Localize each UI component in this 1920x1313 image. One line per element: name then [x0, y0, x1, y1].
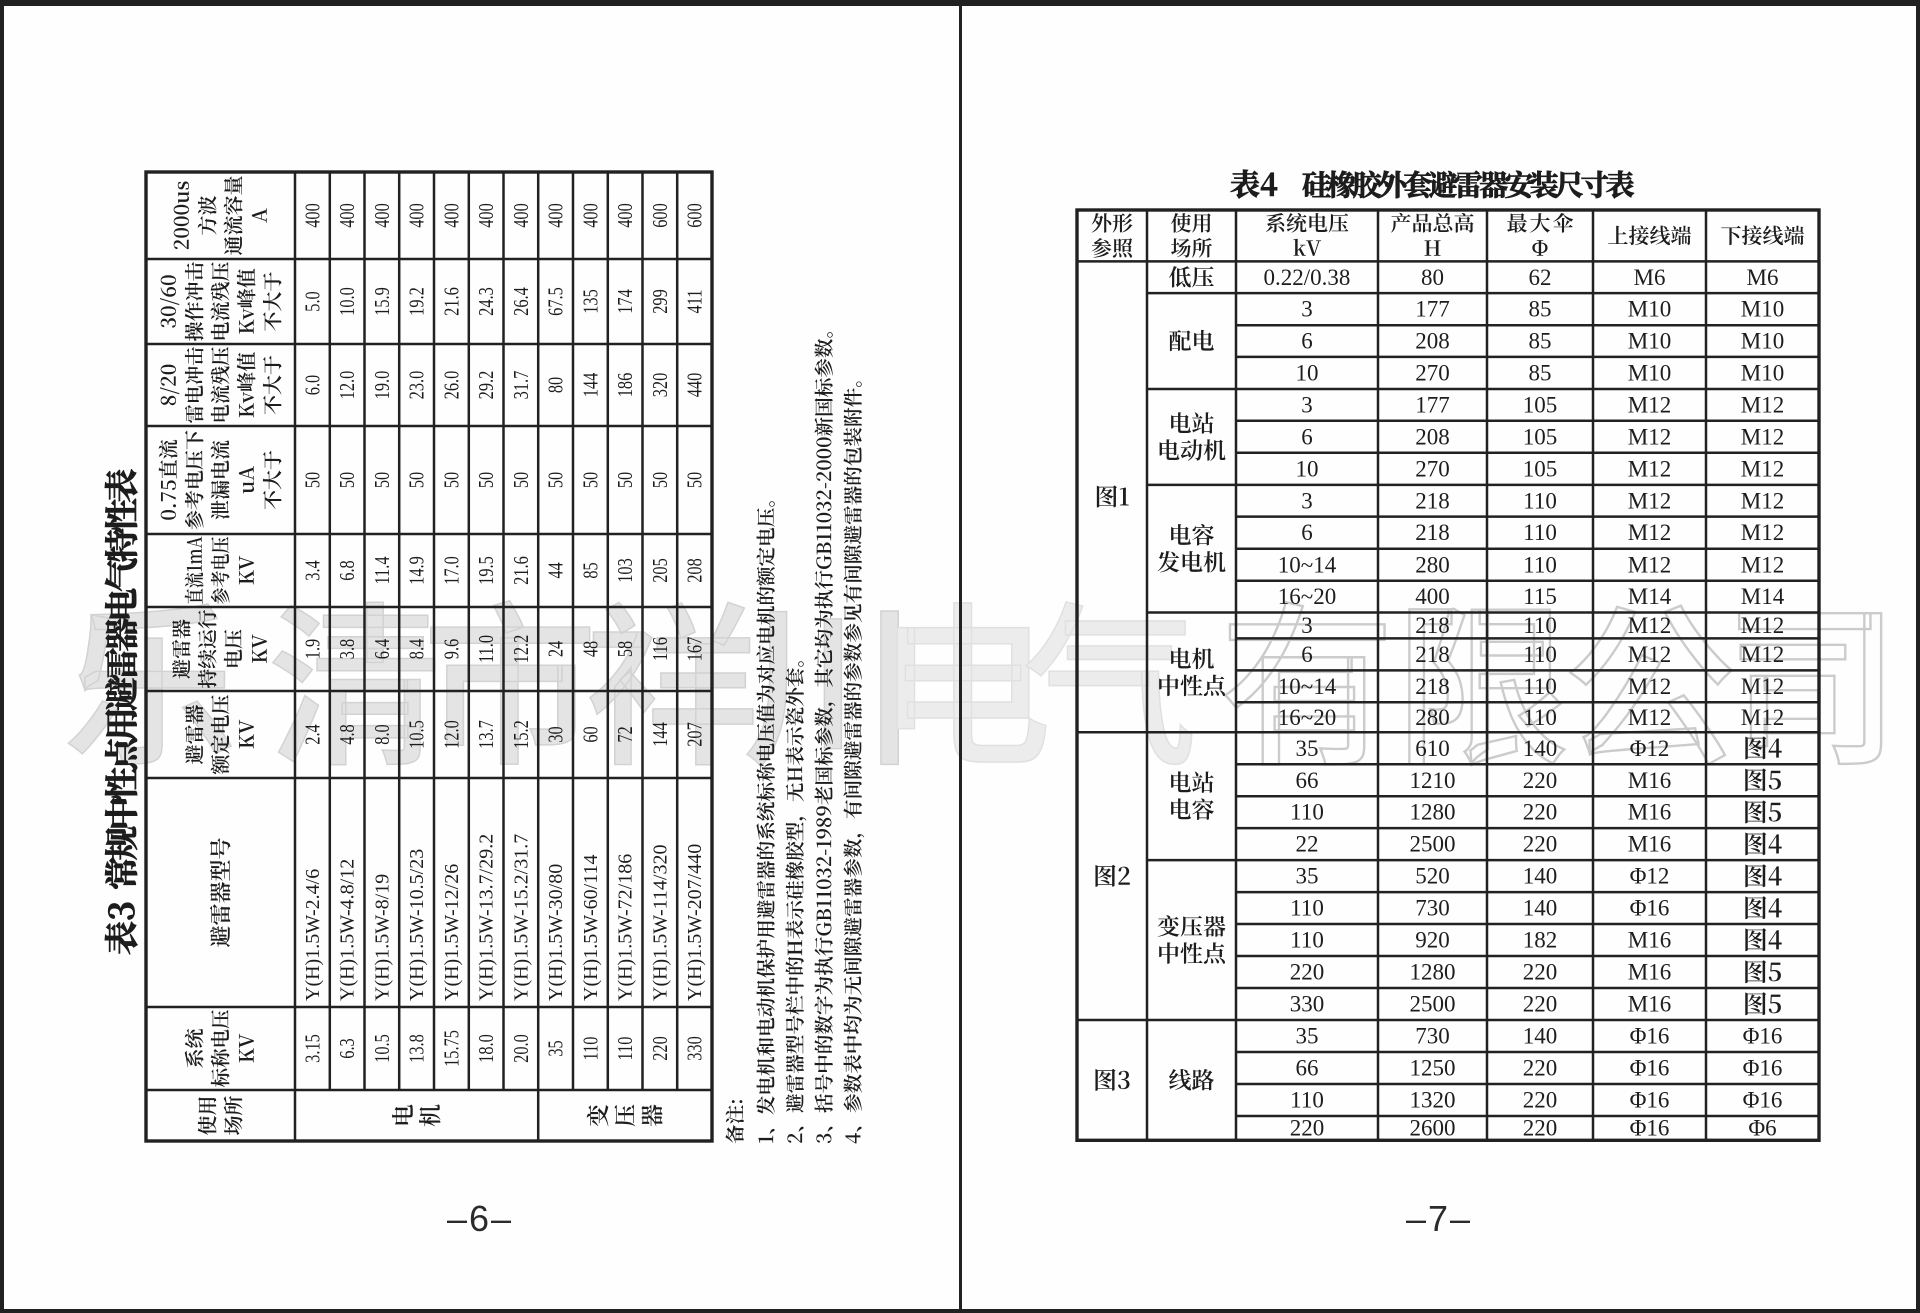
svg-text:M12: M12 [1628, 674, 1671, 699]
svg-text:M16: M16 [1628, 800, 1671, 825]
svg-text:110: 110 [1290, 800, 1324, 825]
svg-text:26.0: 26.0 [440, 371, 463, 400]
svg-text:19.5: 19.5 [475, 556, 498, 585]
svg-text:50: 50 [336, 472, 359, 488]
svg-text:M12: M12 [1628, 705, 1671, 730]
svg-text:110: 110 [579, 1037, 602, 1061]
svg-text:2500: 2500 [1410, 992, 1456, 1017]
svg-text:105: 105 [1523, 424, 1558, 449]
svg-text:–7–: –7– [1406, 1198, 1472, 1239]
svg-text:520: 520 [1415, 864, 1450, 889]
svg-text:10~14: 10~14 [1278, 552, 1337, 577]
svg-text:218: 218 [1415, 613, 1450, 638]
svg-text:Y(H)1.5W-2.4/6: Y(H)1.5W-2.4/6 [302, 869, 324, 1001]
svg-text:Φ12: Φ12 [1630, 864, 1670, 889]
svg-text:15.75: 15.75 [440, 1030, 463, 1067]
svg-text:10.0: 10.0 [336, 287, 359, 316]
svg-text:M12: M12 [1628, 456, 1671, 481]
svg-text:30: 30 [545, 726, 568, 742]
svg-text:8.0: 8.0 [371, 724, 394, 744]
svg-text:144: 144 [649, 722, 672, 747]
svg-text:110: 110 [1523, 642, 1557, 667]
svg-text:110: 110 [1523, 613, 1557, 638]
svg-text:182: 182 [1523, 928, 1558, 953]
svg-text:Y(H)1.5W-12/26: Y(H)1.5W-12/26 [441, 864, 463, 1001]
svg-text:103: 103 [614, 558, 637, 583]
svg-text:400: 400 [406, 203, 429, 228]
svg-text:M12: M12 [1741, 674, 1784, 699]
svg-text:Φ16: Φ16 [1630, 1024, 1670, 1049]
svg-text:2600: 2600 [1410, 1116, 1456, 1141]
svg-text:1280: 1280 [1410, 800, 1456, 825]
svg-text:50: 50 [371, 472, 394, 488]
svg-text:Y(H)1.5W-114/320: Y(H)1.5W-114/320 [650, 845, 672, 1001]
svg-text:115: 115 [1523, 584, 1557, 609]
svg-text:6: 6 [1301, 520, 1313, 545]
svg-text:12.0: 12.0 [336, 371, 359, 400]
svg-text:110: 110 [1290, 1088, 1324, 1113]
svg-text:1250: 1250 [1410, 1056, 1456, 1081]
svg-text:66: 66 [1296, 1056, 1319, 1081]
svg-text:3: 3 [1301, 297, 1313, 322]
svg-text:400: 400 [371, 203, 394, 228]
svg-text:610: 610 [1415, 736, 1450, 761]
svg-text:144: 144 [579, 372, 602, 397]
svg-text:140: 140 [1523, 1024, 1558, 1049]
svg-text:320: 320 [649, 373, 672, 398]
svg-text:220: 220 [1290, 1116, 1325, 1141]
svg-text:330: 330 [1290, 992, 1325, 1017]
svg-text:Φ6: Φ6 [1748, 1116, 1776, 1141]
svg-text:186: 186 [614, 373, 637, 398]
svg-text:208: 208 [1415, 424, 1450, 449]
svg-text:50: 50 [510, 472, 533, 488]
svg-text:26.4: 26.4 [510, 287, 533, 316]
svg-text:80: 80 [545, 377, 568, 393]
svg-text:177: 177 [1415, 297, 1450, 322]
svg-text:58: 58 [614, 641, 637, 657]
svg-text:3.15: 3.15 [301, 1034, 324, 1063]
svg-text:50: 50 [301, 472, 324, 488]
svg-text:19.2: 19.2 [406, 287, 429, 316]
svg-text:110: 110 [614, 1037, 637, 1061]
svg-text:31.7: 31.7 [510, 371, 533, 400]
svg-text:M12: M12 [1628, 520, 1671, 545]
svg-text:62: 62 [1529, 265, 1552, 290]
svg-text:10.5: 10.5 [406, 720, 429, 749]
svg-text:5.0: 5.0 [301, 291, 324, 311]
svg-text:Φ12: Φ12 [1630, 736, 1670, 761]
svg-text:M12: M12 [1741, 488, 1784, 513]
svg-text:M12: M12 [1628, 642, 1671, 667]
svg-text:29.2: 29.2 [475, 371, 498, 400]
svg-text:330: 330 [684, 1036, 707, 1061]
svg-text:400: 400 [614, 203, 637, 228]
svg-text:1280: 1280 [1410, 960, 1456, 985]
svg-text:730: 730 [1415, 1024, 1450, 1049]
svg-text:Y(H)1.5W-60/114: Y(H)1.5W-60/114 [580, 855, 602, 1001]
svg-text:21.6: 21.6 [510, 556, 533, 585]
svg-text:M10: M10 [1741, 297, 1784, 322]
svg-text:208: 208 [684, 558, 707, 583]
svg-text:50: 50 [406, 472, 429, 488]
svg-text:35: 35 [1296, 864, 1319, 889]
svg-text:M14: M14 [1741, 584, 1785, 609]
svg-text:205: 205 [649, 558, 672, 583]
svg-text:Φ16: Φ16 [1743, 1056, 1783, 1081]
svg-text:6: 6 [1301, 642, 1313, 667]
svg-text:M12: M12 [1628, 424, 1671, 449]
svg-text:400: 400 [301, 203, 324, 228]
svg-text:Φ16: Φ16 [1630, 1088, 1670, 1113]
svg-text:6.8: 6.8 [336, 560, 359, 580]
svg-text:Φ16: Φ16 [1630, 1116, 1670, 1141]
svg-text:140: 140 [1523, 896, 1558, 921]
svg-text:400: 400 [1415, 584, 1450, 609]
svg-text:14.9: 14.9 [406, 556, 429, 585]
svg-text:21.6: 21.6 [440, 287, 463, 316]
svg-text:220: 220 [1290, 960, 1325, 985]
svg-text:M14: M14 [1628, 584, 1672, 609]
svg-text:24: 24 [545, 640, 568, 657]
svg-text:M16: M16 [1628, 928, 1671, 953]
svg-text:19.0: 19.0 [371, 371, 394, 400]
svg-text:3: 3 [1301, 392, 1313, 417]
svg-text:50: 50 [545, 472, 568, 488]
svg-text:50: 50 [614, 472, 637, 488]
svg-text:105: 105 [1523, 456, 1558, 481]
svg-text:218: 218 [1415, 520, 1450, 545]
svg-text:66: 66 [1296, 768, 1319, 793]
svg-text:1320: 1320 [1410, 1088, 1456, 1113]
svg-text:M12: M12 [1628, 392, 1671, 417]
svg-text:Y(H)1.5W-13.7/29.2: Y(H)1.5W-13.7/29.2 [476, 834, 498, 1001]
svg-text:Y(H)1.5W-30/80: Y(H)1.5W-30/80 [545, 864, 567, 1001]
svg-text:Y(H)1.5W-72/186: Y(H)1.5W-72/186 [615, 854, 637, 1001]
svg-text:23.0: 23.0 [406, 371, 429, 400]
svg-text:400: 400 [336, 203, 359, 228]
svg-text:220: 220 [649, 1036, 672, 1061]
svg-text:50: 50 [579, 472, 602, 488]
svg-text:48: 48 [579, 641, 602, 657]
svg-text:220: 220 [1523, 960, 1558, 985]
svg-text:Y(H)1.5W-8/19: Y(H)1.5W-8/19 [372, 874, 394, 1001]
svg-text:12.2: 12.2 [510, 635, 533, 664]
svg-text:50: 50 [684, 472, 707, 488]
svg-text:110: 110 [1523, 674, 1557, 699]
svg-text:218: 218 [1415, 642, 1450, 667]
svg-text:M10: M10 [1741, 329, 1784, 354]
svg-text:35: 35 [1296, 1024, 1319, 1049]
svg-text:400: 400 [579, 203, 602, 228]
svg-text:M10: M10 [1628, 361, 1671, 386]
svg-text:3: 3 [1301, 613, 1313, 638]
svg-text:140: 140 [1523, 864, 1558, 889]
svg-text:85: 85 [579, 562, 602, 578]
svg-text:270: 270 [1415, 361, 1450, 386]
svg-text:10~14: 10~14 [1278, 674, 1337, 699]
svg-text:80: 80 [1421, 265, 1444, 290]
svg-text:220: 220 [1523, 1116, 1558, 1141]
svg-text:400: 400 [510, 203, 533, 228]
svg-text:3.4: 3.4 [301, 560, 324, 581]
svg-text:400: 400 [545, 203, 568, 228]
svg-text:Y(H)1.5W-15.2/31.7: Y(H)1.5W-15.2/31.7 [511, 834, 533, 1001]
svg-text:M10: M10 [1628, 297, 1671, 322]
svg-text:3: 3 [1301, 488, 1313, 513]
svg-text:6.3: 6.3 [336, 1038, 359, 1058]
svg-text:M12: M12 [1741, 552, 1784, 577]
svg-text:72: 72 [614, 726, 637, 742]
svg-text:220: 220 [1523, 832, 1558, 857]
svg-text:50: 50 [649, 472, 672, 488]
svg-text:6: 6 [1301, 329, 1313, 354]
svg-text:6.4: 6.4 [371, 638, 394, 659]
svg-text:110: 110 [1523, 520, 1557, 545]
svg-text:Y(H)1.5W-207/440: Y(H)1.5W-207/440 [684, 844, 706, 1001]
svg-text:10.5: 10.5 [371, 1034, 394, 1063]
svg-text:M12: M12 [1628, 488, 1671, 513]
svg-text:10: 10 [1296, 361, 1319, 386]
svg-text:13.7: 13.7 [475, 720, 498, 749]
svg-text:M12: M12 [1741, 424, 1784, 449]
svg-text:220: 220 [1523, 800, 1558, 825]
svg-text:16~20: 16~20 [1278, 584, 1336, 609]
svg-text:110: 110 [1290, 928, 1324, 953]
svg-text:M12: M12 [1741, 613, 1784, 638]
svg-text:85: 85 [1529, 297, 1552, 322]
svg-text:67.5: 67.5 [545, 287, 568, 316]
svg-text:6: 6 [1301, 424, 1313, 449]
svg-text:135: 135 [579, 289, 602, 314]
svg-text:3.8: 3.8 [336, 639, 359, 659]
svg-text:400: 400 [440, 203, 463, 228]
svg-text:177: 177 [1415, 392, 1450, 417]
svg-text:0.22/0.38: 0.22/0.38 [1264, 265, 1351, 290]
svg-text:174: 174 [614, 289, 637, 314]
svg-text:12.0: 12.0 [440, 720, 463, 749]
svg-text:9.6: 9.6 [440, 639, 463, 659]
svg-text:44: 44 [545, 562, 568, 579]
svg-text:600: 600 [684, 203, 707, 228]
svg-text:299: 299 [649, 289, 672, 314]
svg-text:15.9: 15.9 [371, 287, 394, 316]
svg-text:220: 220 [1523, 1088, 1558, 1113]
svg-text:35: 35 [545, 1040, 568, 1056]
svg-text:11.4: 11.4 [371, 556, 394, 585]
svg-text:M12: M12 [1741, 456, 1784, 481]
svg-text:280: 280 [1415, 552, 1450, 577]
svg-text:1.9: 1.9 [301, 639, 324, 659]
svg-text:4.8: 4.8 [336, 724, 359, 744]
svg-text:50: 50 [440, 472, 463, 488]
svg-text:M16: M16 [1628, 960, 1671, 985]
svg-text:17.0: 17.0 [440, 556, 463, 585]
svg-text:730: 730 [1415, 896, 1450, 921]
svg-text:110: 110 [1523, 705, 1557, 730]
svg-text:M16: M16 [1628, 768, 1671, 793]
svg-text:220: 220 [1523, 768, 1558, 793]
svg-text:M16: M16 [1628, 832, 1671, 857]
svg-text:600: 600 [649, 203, 672, 228]
svg-text:110: 110 [1523, 488, 1557, 513]
svg-text:20.0: 20.0 [510, 1034, 533, 1063]
svg-text:M12: M12 [1628, 613, 1671, 638]
svg-text:220: 220 [1523, 992, 1558, 1017]
svg-text:218: 218 [1415, 674, 1450, 699]
svg-text:110: 110 [1290, 896, 1324, 921]
svg-text:10: 10 [1296, 456, 1319, 481]
svg-text:280: 280 [1415, 705, 1450, 730]
svg-text:Φ16: Φ16 [1630, 896, 1670, 921]
svg-text:–6–: –6– [447, 1198, 513, 1239]
svg-text:M16: M16 [1628, 992, 1671, 1017]
svg-text:218: 218 [1415, 488, 1450, 513]
svg-text:85: 85 [1529, 361, 1552, 386]
svg-text:Φ16: Φ16 [1743, 1088, 1783, 1113]
svg-text:220: 220 [1523, 1056, 1558, 1081]
svg-text:M10: M10 [1741, 361, 1784, 386]
svg-text:270: 270 [1415, 456, 1450, 481]
svg-text:110: 110 [1523, 552, 1557, 577]
svg-text:2500: 2500 [1410, 832, 1456, 857]
svg-text:207: 207 [684, 722, 707, 747]
svg-text:Y(H)1.5W-10.5/23: Y(H)1.5W-10.5/23 [406, 849, 428, 1001]
svg-text:M12: M12 [1628, 552, 1671, 577]
svg-text:440: 440 [684, 373, 707, 398]
svg-text:M12: M12 [1741, 705, 1784, 730]
svg-text:24.3: 24.3 [475, 287, 498, 316]
svg-text:M6: M6 [1634, 265, 1666, 290]
svg-text:Φ16: Φ16 [1743, 1024, 1783, 1049]
svg-text:Φ16: Φ16 [1630, 1056, 1670, 1081]
svg-text:M6: M6 [1747, 265, 1779, 290]
svg-text:6.0: 6.0 [301, 375, 324, 395]
svg-text:2.4: 2.4 [301, 724, 324, 745]
svg-text:60: 60 [579, 726, 602, 742]
svg-text:50: 50 [475, 472, 498, 488]
svg-text:M12: M12 [1741, 642, 1784, 667]
svg-text:411: 411 [684, 290, 707, 314]
svg-text:116: 116 [649, 637, 672, 661]
svg-text:208: 208 [1415, 329, 1450, 354]
svg-text:8.4: 8.4 [406, 638, 429, 659]
svg-text:11.0: 11.0 [475, 635, 498, 663]
svg-text:M12: M12 [1741, 392, 1784, 417]
svg-text:167: 167 [684, 637, 707, 662]
svg-text:400: 400 [475, 203, 498, 228]
svg-text:35: 35 [1296, 736, 1319, 761]
svg-text:M10: M10 [1628, 329, 1671, 354]
svg-text:Y(H)1.5W-4.8/12: Y(H)1.5W-4.8/12 [337, 859, 359, 1001]
svg-text:15.2: 15.2 [510, 720, 533, 749]
svg-text:M12: M12 [1741, 520, 1784, 545]
svg-text:16~20: 16~20 [1278, 705, 1336, 730]
svg-text:13.8: 13.8 [406, 1034, 429, 1063]
svg-text:22: 22 [1296, 832, 1319, 857]
svg-text:105: 105 [1523, 392, 1558, 417]
svg-text:18.0: 18.0 [475, 1034, 498, 1063]
svg-text:85: 85 [1529, 329, 1552, 354]
svg-text:140: 140 [1523, 736, 1558, 761]
svg-text:920: 920 [1415, 928, 1450, 953]
svg-text:1210: 1210 [1410, 768, 1456, 793]
